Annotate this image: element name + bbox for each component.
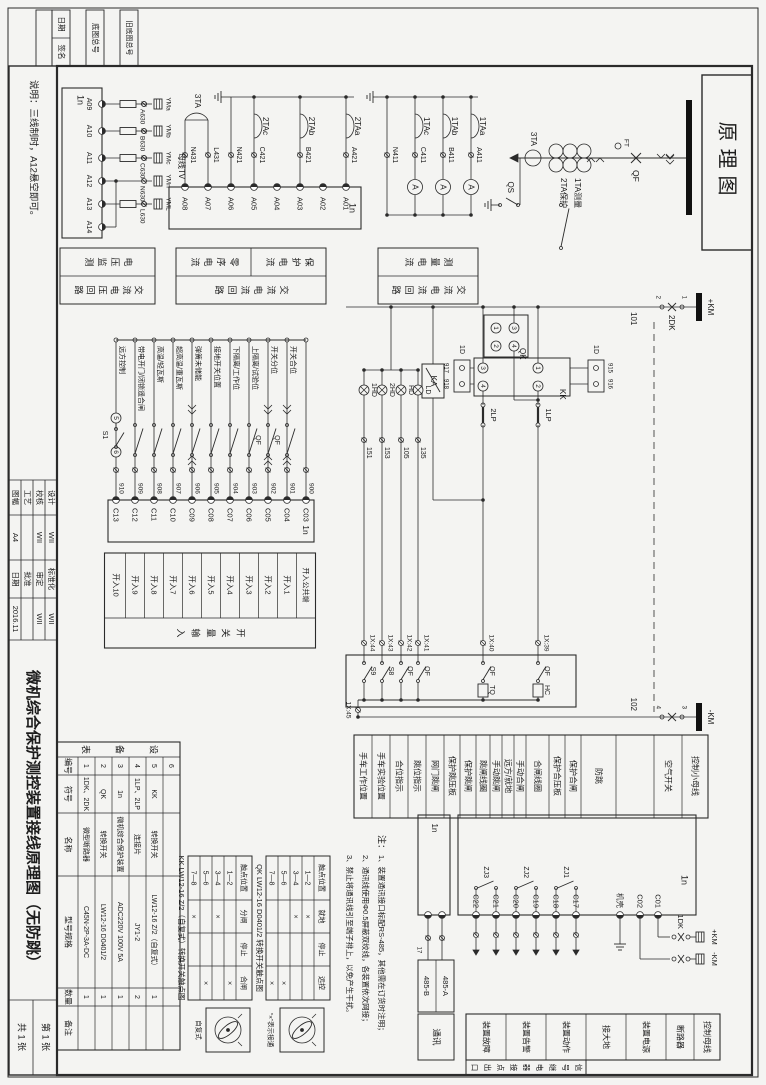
pt-tap bbox=[154, 126, 162, 136]
circle bbox=[400, 680, 403, 683]
wire-label: 906 bbox=[193, 483, 200, 494]
arrow bbox=[473, 950, 479, 955]
input-function-label: 下隔离/工作位 bbox=[232, 346, 241, 390]
terminal-label: C07 bbox=[226, 508, 235, 522]
ammeter-letter: A bbox=[438, 184, 447, 190]
circled-number: 5 bbox=[112, 416, 119, 420]
junction-dot bbox=[380, 698, 384, 702]
wire-label: N411 bbox=[391, 147, 398, 163]
section-volt-circuit: 回 bbox=[86, 285, 96, 294]
wire-label: A421 bbox=[350, 147, 357, 163]
junction-dot bbox=[385, 95, 389, 99]
circle bbox=[615, 143, 621, 149]
equipment-cell: 1 bbox=[82, 995, 89, 999]
junction-dot bbox=[481, 698, 485, 702]
wire bbox=[238, 1014, 242, 1018]
equipment-header: 备注 bbox=[63, 1020, 73, 1036]
device-function-label: 装置告警 bbox=[521, 1021, 531, 1053]
mech-terminal-label: 1X:40 bbox=[487, 635, 494, 652]
signal-note: 信 bbox=[574, 1064, 584, 1072]
section-zeroseq: 序 bbox=[216, 257, 227, 266]
contact-table-header: 远控 bbox=[318, 976, 327, 990]
section-volt: 电 bbox=[123, 257, 134, 266]
pole-number: 2 bbox=[654, 296, 660, 300]
equipment-cell: LW12-16 D0401/2 bbox=[99, 904, 106, 960]
section-volt: 压 bbox=[110, 257, 120, 266]
terminal-strip-1d bbox=[454, 360, 470, 392]
circle bbox=[381, 680, 384, 683]
tap-label: YMa bbox=[164, 97, 171, 111]
terminal-label: A13 bbox=[85, 198, 92, 211]
input-table-cell: 开入1 bbox=[283, 575, 292, 594]
title-block-cell: 日期 bbox=[11, 572, 20, 587]
signal-note: 器 bbox=[522, 1064, 531, 1072]
circled-number: 2 bbox=[534, 384, 541, 388]
circled-number: 4 bbox=[510, 344, 517, 348]
junction-dot bbox=[356, 715, 360, 719]
wire-label: A630 bbox=[138, 109, 145, 125]
ammeter-letter: A bbox=[466, 184, 475, 190]
fuse bbox=[120, 128, 136, 135]
input-function-label: 高温/轻瓦斯 bbox=[156, 346, 165, 383]
mech-switch-label: S8 bbox=[387, 667, 394, 676]
junction-dot bbox=[252, 95, 256, 99]
device-label: 1n bbox=[301, 525, 311, 535]
junction-dot bbox=[362, 698, 366, 702]
equipment-cell: ADC220V 100V 5A bbox=[116, 902, 123, 962]
protection-terminal-box bbox=[169, 187, 361, 229]
terminal-label: A05 bbox=[250, 197, 259, 210]
contact-table-cell: × bbox=[280, 981, 287, 985]
contact-table-cell: 5—6 bbox=[280, 871, 287, 886]
note-line: 3、禁止将通讯线引至端子排上，以免产生干扰。 bbox=[345, 855, 355, 1017]
wire-label: 908 bbox=[155, 483, 162, 494]
terminal-strip-label: 1D bbox=[458, 345, 465, 354]
qs-label: QS bbox=[506, 181, 515, 193]
wire-label: B630 bbox=[138, 136, 145, 152]
input-function-label: 上隔离/试验位 bbox=[251, 346, 260, 390]
negative-bus-bar bbox=[696, 703, 702, 731]
circle bbox=[672, 957, 676, 961]
wire-label: L431 bbox=[212, 147, 219, 163]
positive-bus-label: +KM bbox=[706, 299, 715, 316]
circle bbox=[460, 366, 465, 371]
circle bbox=[549, 158, 563, 172]
input-function-label: 带电开门/闭锁遥合闸 bbox=[137, 346, 146, 411]
switch-label: S1 bbox=[101, 431, 108, 440]
tap-label: YMb bbox=[164, 124, 171, 138]
function-row-label: 手动跳闸 bbox=[491, 760, 501, 792]
device-function-label: 控制母线 bbox=[702, 1021, 712, 1053]
junction-dot bbox=[344, 95, 348, 99]
equipment-cell: QK bbox=[99, 789, 106, 799]
fuse bbox=[120, 101, 136, 108]
circle bbox=[549, 144, 563, 158]
equipment-cell: 1n bbox=[116, 790, 123, 798]
junction-dot bbox=[416, 698, 420, 702]
sheet-note: 说明：三线制时，A12悬空即可。 bbox=[27, 80, 39, 220]
terminal-number: 917 bbox=[442, 363, 448, 374]
contact-table-cell: 3—4 bbox=[214, 871, 221, 886]
contact-table-header: 触点位置 bbox=[318, 864, 327, 892]
input-table-cell: 开入2 bbox=[264, 575, 273, 594]
schematic-drawing: 原理图旧底图总号底图总号日期签名说明：三线制时，A12悬空即可。设计WII标准化… bbox=[0, 0, 766, 1085]
terminal-label: C06 bbox=[245, 508, 254, 522]
section-meas-circuit: 路 bbox=[391, 285, 402, 294]
section-volt-circuit: 交 bbox=[134, 285, 145, 294]
wire-label: 900 bbox=[307, 483, 314, 494]
circle bbox=[482, 680, 485, 683]
contact-table-header: 就地 bbox=[318, 910, 327, 924]
km-tap bbox=[696, 932, 704, 942]
circle bbox=[577, 158, 591, 172]
terminal-label: A09 bbox=[85, 98, 92, 111]
function-row-label: 保护跳闸 bbox=[463, 760, 473, 792]
pt-tap bbox=[154, 99, 162, 109]
contact-table-header: 分闸 bbox=[240, 910, 249, 924]
title-block-cell: 批准 bbox=[23, 572, 33, 587]
kk-table-title: KK LW12-16 Z/2（自复式）转换开关触点图 bbox=[177, 856, 187, 1001]
circle bbox=[227, 1029, 230, 1032]
input-table-title: 关 bbox=[221, 628, 232, 637]
title-block-cell: WII bbox=[47, 613, 56, 624]
equipment-cell: 6 bbox=[167, 764, 174, 768]
section-zeroseq: 零 bbox=[229, 257, 239, 266]
pt-tap bbox=[154, 153, 162, 163]
contact-table-cell: 1—2 bbox=[226, 871, 233, 886]
section-prot: 流 bbox=[265, 257, 276, 266]
section-meas: 电 bbox=[417, 257, 428, 266]
section-meas-circuit: 回 bbox=[404, 285, 414, 294]
section-prot: 电 bbox=[278, 257, 289, 266]
device-function-label: 装置电源 bbox=[641, 1021, 651, 1053]
schematic-sheet: 原理图旧底图总号底图总号日期签名说明：三线制时，A12悬空即可。设计WII标准化… bbox=[0, 0, 766, 1085]
contact-table-cell: 5—6 bbox=[202, 871, 209, 886]
circled-number: 1 bbox=[492, 326, 499, 330]
title-block-cell: 校核 bbox=[35, 490, 45, 505]
input-function-label: 超高温/重瓦斯 bbox=[175, 346, 184, 390]
tap-label: YML bbox=[164, 197, 171, 211]
wire bbox=[312, 1042, 316, 1046]
pole-number: 4 bbox=[654, 706, 660, 710]
section-meas-circuit: 交 bbox=[456, 285, 467, 294]
section-meas-circuit: 电 bbox=[430, 285, 441, 294]
bus-tv-label: 母线TV bbox=[177, 153, 187, 180]
mech-switch-label: QF bbox=[543, 666, 550, 676]
signal-note: 号 bbox=[561, 1064, 570, 1072]
section-prot-circuit: 电 bbox=[253, 285, 264, 294]
junction-dot bbox=[399, 698, 403, 702]
wire-label: C630 bbox=[138, 163, 145, 179]
terminal-label: A11 bbox=[85, 152, 92, 164]
contact-blade bbox=[211, 429, 219, 454]
arrow bbox=[513, 950, 519, 955]
kk-switch-box bbox=[474, 358, 570, 396]
terminal-label: A08 bbox=[181, 197, 190, 210]
function-row-label: 跳位指示 bbox=[412, 760, 422, 792]
circle bbox=[417, 680, 420, 683]
contact-table-cell: 1—2 bbox=[304, 871, 311, 886]
input-table-cell: 开入3 bbox=[245, 575, 254, 594]
equipment-cell: 1 bbox=[82, 764, 89, 768]
circled-number: 2 bbox=[492, 344, 499, 348]
input-table-cell: 开入9 bbox=[131, 575, 140, 594]
equipment-cell: 1LP、2LP bbox=[133, 778, 140, 810]
junction-dot bbox=[469, 95, 473, 99]
coil bbox=[533, 684, 543, 697]
equipment-cell: 1DK、2DK bbox=[82, 777, 89, 812]
link-label: 2LP bbox=[489, 408, 498, 421]
pole-number: 1 bbox=[680, 296, 686, 300]
circled-number: 6 bbox=[112, 450, 119, 454]
margin-date-label: 日期 bbox=[57, 17, 66, 32]
function-row-label: 网门跳闸 bbox=[430, 760, 440, 792]
title-block-cell: A4 bbox=[11, 533, 20, 542]
device-label: 1n bbox=[680, 875, 690, 885]
km-tap-label: +KM bbox=[710, 929, 719, 945]
wire-label: 151 bbox=[365, 447, 372, 459]
circle bbox=[560, 247, 563, 250]
section-meas-circuit: 流 bbox=[443, 285, 454, 294]
rs485-a-label: 485-A bbox=[441, 976, 450, 996]
chassis-label: 机壳 bbox=[616, 893, 626, 908]
pt-tap bbox=[154, 176, 162, 186]
input-table-title: 入 bbox=[176, 628, 186, 637]
circled-number: 4 bbox=[479, 384, 486, 388]
margin-box bbox=[36, 10, 52, 66]
path bbox=[657, 154, 665, 158]
lamp-label: HD bbox=[407, 385, 414, 395]
input-table-cell: 开入8 bbox=[150, 575, 159, 594]
kk-label: KK bbox=[558, 389, 567, 400]
contact-table-cell: × bbox=[304, 914, 311, 918]
wire-label: 903 bbox=[250, 483, 257, 494]
lamp-label: LD bbox=[424, 386, 431, 395]
terminal-strip-1d bbox=[588, 360, 604, 392]
input-table-title: 输 bbox=[191, 628, 202, 637]
equipment-cell: 2 bbox=[133, 995, 140, 999]
comm-terminal-number: 17 bbox=[415, 947, 421, 954]
contact-table-cell: 7—8 bbox=[268, 871, 275, 886]
function-row-label: 手车工作位置 bbox=[358, 752, 368, 800]
function-row-label: 手动合闸 bbox=[515, 760, 525, 792]
circle bbox=[594, 382, 599, 387]
contact-blade bbox=[135, 429, 143, 454]
zero-ct-label: 3TA bbox=[193, 94, 202, 109]
circle bbox=[686, 935, 690, 939]
terminal-label: A03 bbox=[296, 197, 305, 210]
wire-label: 153 bbox=[383, 447, 390, 459]
contact-blade bbox=[557, 881, 573, 888]
function-row-label: 手车实验位置 bbox=[376, 752, 386, 800]
wire-label: B411 bbox=[447, 147, 454, 163]
contact-table-cell: 7—8 bbox=[190, 871, 197, 886]
equipment-header: 型号规格 bbox=[63, 916, 73, 948]
ammeter-letter: A bbox=[410, 184, 419, 190]
mech-terminal-label: 1X:39 bbox=[542, 635, 549, 652]
input-table-cell: 开入10 bbox=[112, 573, 121, 596]
wire-101-label: 101 bbox=[629, 312, 638, 326]
notes-head: 注： bbox=[377, 835, 388, 853]
title-block-cell: WII bbox=[47, 532, 56, 543]
input-table-title: 量 bbox=[206, 628, 216, 637]
circle bbox=[563, 158, 577, 172]
main-frame bbox=[57, 66, 752, 1075]
device-function-label: 接大地 bbox=[601, 1025, 611, 1049]
contact-blade bbox=[192, 429, 200, 454]
arrow bbox=[533, 950, 539, 955]
path bbox=[666, 160, 674, 164]
terminal-label: C10 bbox=[169, 508, 178, 522]
feeder-arrow bbox=[510, 154, 518, 162]
contact-table-cell: × bbox=[190, 914, 197, 918]
contact-table-cell: × bbox=[268, 981, 275, 985]
contact-table-cell: × bbox=[292, 914, 299, 918]
section-zeroseq: 流 bbox=[190, 257, 201, 266]
terminal-label: A06 bbox=[227, 197, 236, 210]
junction-dot bbox=[481, 498, 485, 502]
contact-blade bbox=[477, 881, 493, 888]
ct-label: 1TAa bbox=[478, 117, 487, 136]
relay-label: ZJ2 bbox=[522, 866, 529, 878]
fuse bbox=[120, 201, 136, 208]
section-volt-circuit: 压 bbox=[98, 285, 108, 294]
equipment-cell: LW12-16 Z/2（自复式） bbox=[150, 895, 159, 970]
voltage-terminal-box bbox=[62, 88, 102, 238]
section-prot-circuit: 回 bbox=[227, 285, 237, 294]
junction-dot bbox=[114, 179, 118, 183]
arrow bbox=[493, 950, 499, 955]
wire-label: A411 bbox=[475, 147, 482, 163]
contact-table-header: 触点位置 bbox=[240, 864, 249, 892]
title-block-cell: 2016.11 bbox=[11, 606, 20, 633]
coil-label: HC bbox=[543, 685, 550, 695]
note-line: 1、装置通讯接口标配RS-485，其他需在订货时注明； bbox=[377, 855, 387, 1035]
negative-bus-label: -KM bbox=[706, 710, 715, 725]
mech-switch-label: QF bbox=[406, 666, 413, 676]
signal-note: 继 bbox=[548, 1064, 558, 1072]
equipment-header: 名称 bbox=[63, 837, 73, 853]
signal-note: 电 bbox=[535, 1064, 545, 1072]
terminal-label: A10 bbox=[85, 125, 92, 138]
terminal-strip-label: 1D bbox=[592, 345, 599, 354]
title-block-cell: WII bbox=[35, 532, 44, 543]
signal-note: 接 bbox=[509, 1064, 519, 1072]
tap-label: YMn bbox=[164, 174, 171, 188]
device-function-label: 断路器 bbox=[675, 1025, 685, 1049]
terminal-label: C11 bbox=[150, 508, 159, 521]
section-prot-circuit: 流 bbox=[240, 285, 251, 294]
title-block-cell: 设计 bbox=[47, 490, 57, 505]
fuse bbox=[120, 155, 136, 162]
wire-label: B421 bbox=[304, 147, 311, 163]
circle bbox=[563, 144, 577, 158]
terminal-number: 918 bbox=[442, 379, 448, 390]
wire-label: C411 bbox=[419, 147, 426, 163]
rs485-b-label: 485-B bbox=[422, 976, 431, 996]
circled-number: 3 bbox=[510, 326, 517, 330]
wire-label: 904 bbox=[231, 483, 238, 494]
input-table-cell: 开入7 bbox=[169, 575, 178, 594]
input-function-label: 弹簧未储能 bbox=[194, 346, 203, 381]
section-prot-circuit: 交 bbox=[279, 285, 290, 294]
section-zeroseq: 电 bbox=[203, 257, 214, 266]
input-table-cell: 开入4 bbox=[226, 575, 235, 594]
section-meas: 流 bbox=[404, 257, 415, 266]
section-volt-circuit: 流 bbox=[122, 285, 133, 294]
function-row-label: 保护合压板 bbox=[552, 756, 562, 796]
wire bbox=[312, 1014, 316, 1018]
section-volt: 测 bbox=[84, 257, 94, 266]
equipment-header: 编号 bbox=[63, 758, 73, 774]
equipment-cell: 5 bbox=[150, 764, 157, 768]
control-function-strip bbox=[354, 735, 708, 818]
dk-label: 2DK bbox=[667, 315, 676, 331]
equipment-cell: 转换开关 bbox=[99, 831, 108, 859]
signal-note: 口 bbox=[470, 1064, 479, 1072]
section-volt-circuit: 路 bbox=[74, 285, 85, 294]
title-block-cell: 图幅 bbox=[11, 490, 21, 505]
lamp-label: 2HD bbox=[388, 383, 395, 397]
arrow bbox=[573, 950, 579, 955]
junction-dot bbox=[536, 398, 540, 402]
contact-blade bbox=[230, 429, 238, 454]
mech-terminal-label: 1X:41 bbox=[422, 635, 429, 652]
wire-label: 902 bbox=[269, 483, 276, 494]
device-function-label: 装置故障 bbox=[481, 1021, 491, 1053]
lamp-label: 1HD bbox=[370, 383, 377, 397]
screenshot-viewport: 原理图旧底图总号底图总号日期签名说明：三线制时，A12悬空即可。设计WII标准化… bbox=[0, 0, 766, 1085]
terminal-label: A04 bbox=[273, 197, 282, 210]
equipment-cell: 1 bbox=[116, 995, 123, 999]
wire bbox=[506, 198, 518, 205]
junction-dot bbox=[298, 95, 302, 99]
circle bbox=[672, 935, 676, 939]
equipment-header: 数量 bbox=[63, 989, 73, 1005]
terminal-label: C05 bbox=[264, 508, 273, 522]
equipment-cell: 转换开关 bbox=[150, 831, 159, 859]
circle bbox=[363, 680, 366, 683]
terminal-label: A01 bbox=[342, 197, 351, 210]
section-prot-circuit: 流 bbox=[266, 285, 277, 294]
terminal-label: C08 bbox=[207, 508, 216, 522]
terminal-label: C13 bbox=[112, 508, 121, 522]
title-block-cell: 标准化 bbox=[47, 568, 57, 591]
coil bbox=[478, 684, 488, 697]
contact-table-cell: × bbox=[226, 981, 233, 985]
terminal-label: C12 bbox=[131, 508, 140, 522]
circle bbox=[577, 144, 591, 158]
equipment-cell: 微型断路器 bbox=[82, 827, 91, 862]
switch-label: QF bbox=[273, 435, 280, 445]
qf-label: QF bbox=[631, 170, 641, 182]
contact-table-header: 停止 bbox=[318, 943, 327, 957]
section-volt-circuit: 电 bbox=[110, 285, 121, 294]
equipment-cell: 1 bbox=[150, 995, 157, 999]
ct-label: 2TAa bbox=[353, 117, 362, 136]
zero-ct-label: 3TA bbox=[529, 132, 538, 147]
equipment-table-caption: 备 bbox=[115, 745, 126, 754]
circle bbox=[537, 680, 540, 683]
path bbox=[185, 113, 208, 120]
wire-label: L630 bbox=[138, 209, 145, 224]
device-function-label: 装置动作 bbox=[561, 1021, 571, 1053]
ct-label: 2TAc bbox=[261, 117, 270, 135]
circle bbox=[460, 382, 465, 387]
contact-blade bbox=[173, 429, 181, 454]
ct-label: 2TAb bbox=[307, 117, 316, 136]
terminal-label: A02 bbox=[319, 197, 328, 210]
